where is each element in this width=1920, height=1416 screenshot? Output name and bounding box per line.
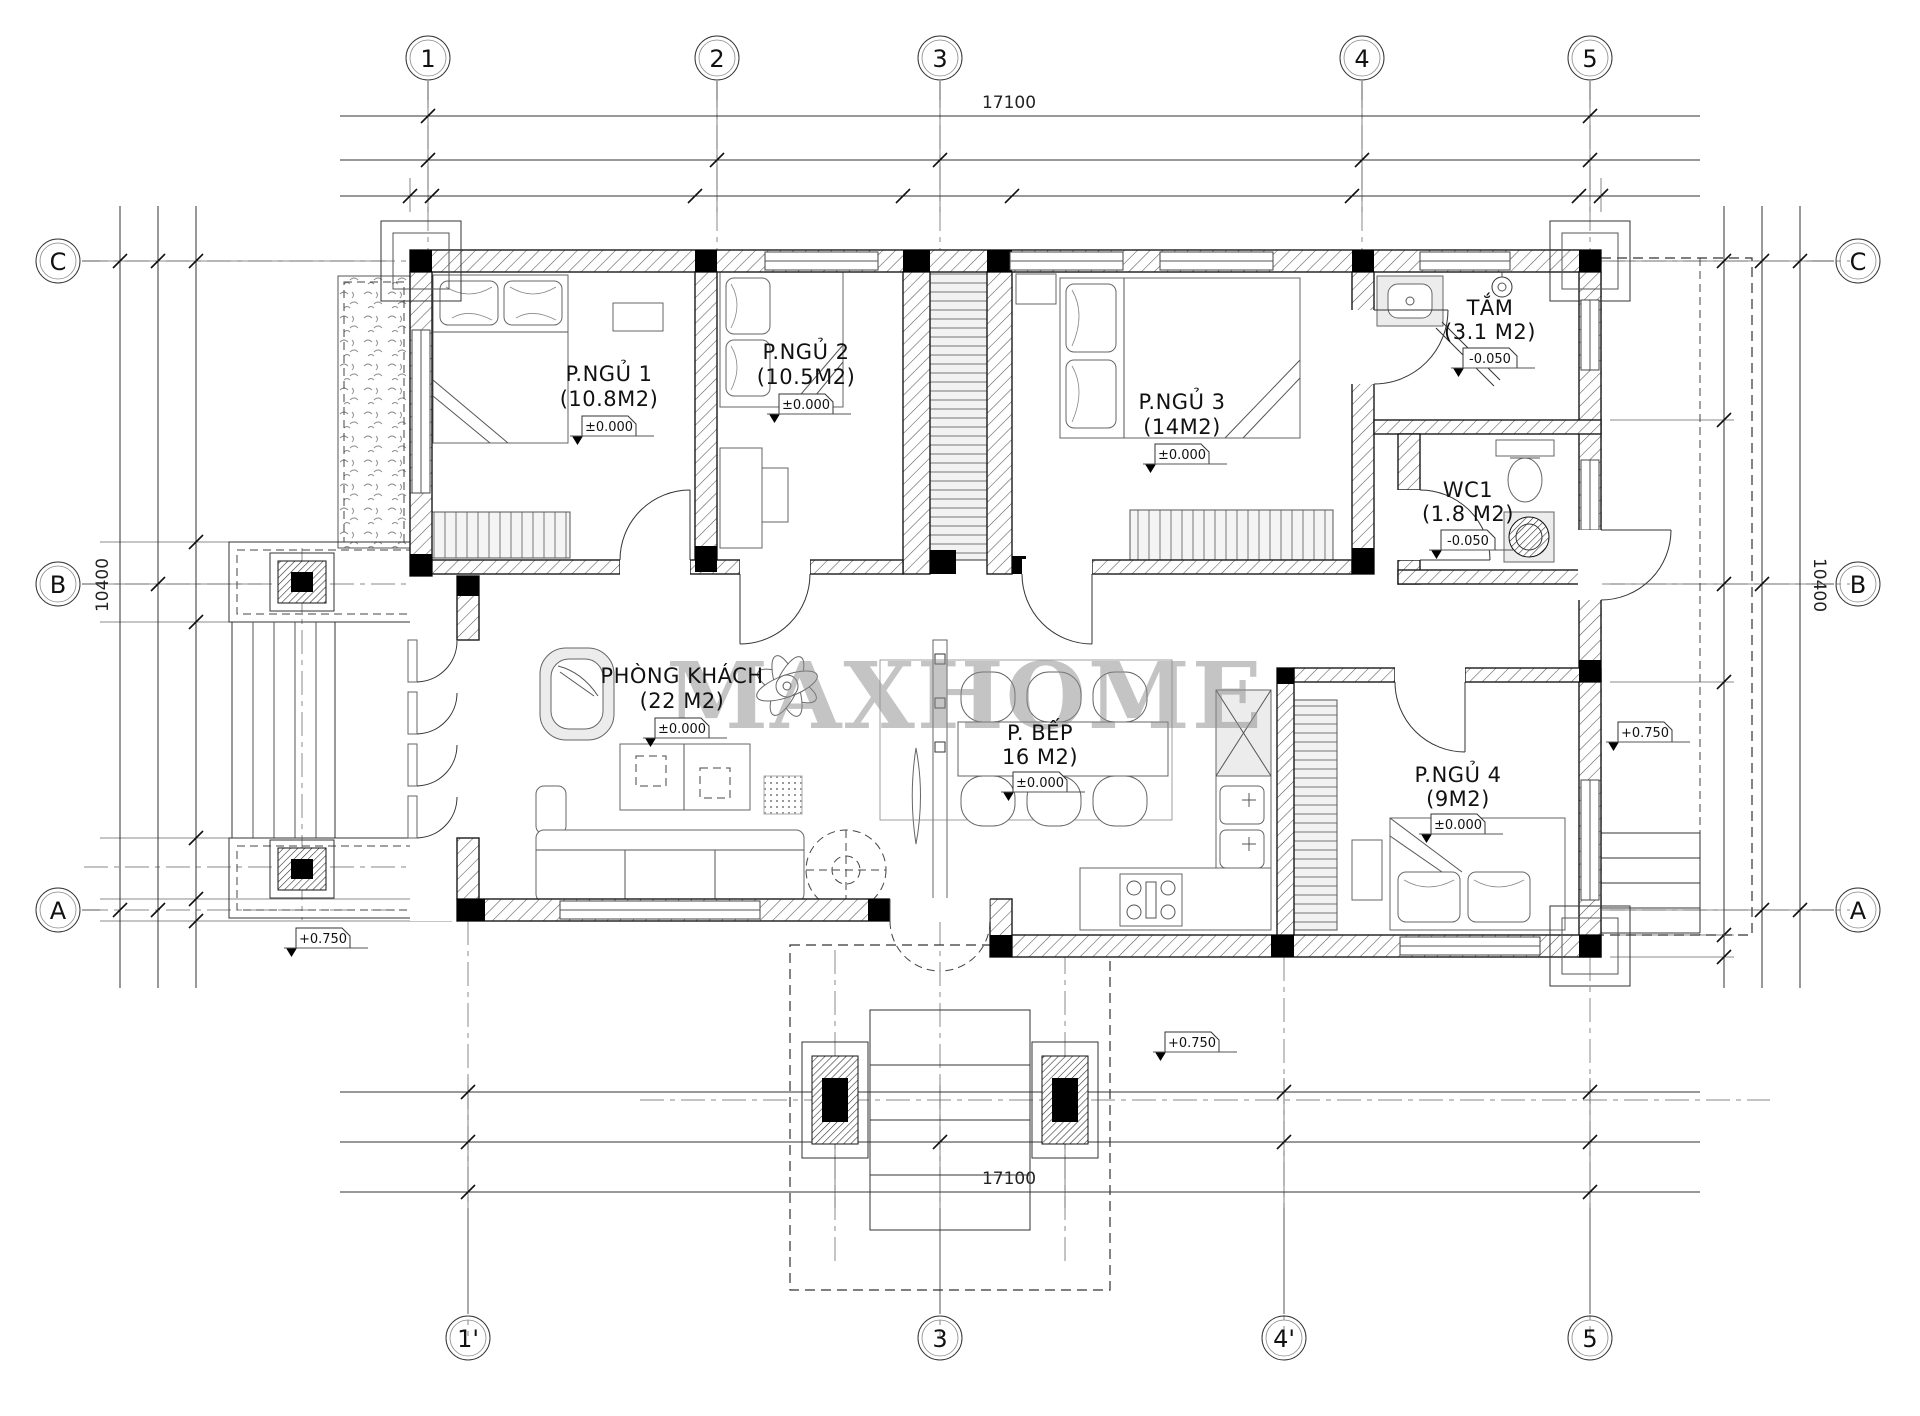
grid-bubble-bottom-4p: 4' bbox=[1262, 1208, 1306, 1360]
grid-bubble-top-4: 4 bbox=[1340, 36, 1384, 100]
svg-text:(3.1 M2): (3.1 M2) bbox=[1444, 320, 1536, 344]
svg-text:PHÒNG KHÁCH: PHÒNG KHÁCH bbox=[600, 663, 763, 688]
porch-deck bbox=[232, 622, 335, 838]
svg-text:3: 3 bbox=[932, 1325, 947, 1353]
flag-right-terrace: +0.750 bbox=[1606, 722, 1690, 751]
svg-text:±0.000: ±0.000 bbox=[1158, 448, 1206, 463]
dim-top-total: 17100 bbox=[982, 93, 1036, 113]
svg-text:-0.050: -0.050 bbox=[1447, 534, 1489, 549]
dim-bottom-total: 17100 bbox=[982, 1169, 1036, 1189]
svg-text:1: 1 bbox=[420, 45, 435, 73]
entrance-steps bbox=[870, 1010, 1030, 1230]
window-bedroom4-bottom bbox=[1400, 937, 1540, 955]
flag-left-porch: +0.750 bbox=[284, 928, 368, 957]
svg-text:C: C bbox=[50, 248, 67, 276]
svg-text:P.NGỦ 2: P.NGỦ 2 bbox=[763, 337, 850, 364]
porch-column-footing-bottom bbox=[270, 840, 334, 898]
svg-text:5: 5 bbox=[1582, 1325, 1597, 1353]
svg-text:B: B bbox=[50, 571, 66, 599]
dim-right-total: 10400 bbox=[1809, 558, 1829, 612]
svg-text:P. BẾP: P. BẾP bbox=[1007, 718, 1073, 745]
svg-text:4': 4' bbox=[1273, 1325, 1295, 1353]
grid-bubble-left-A: A bbox=[36, 888, 100, 932]
svg-text:+0.750: +0.750 bbox=[1621, 726, 1669, 741]
svg-text:(10.5M2): (10.5M2) bbox=[757, 365, 856, 389]
svg-text:C: C bbox=[1850, 248, 1867, 276]
front-entrance-porch bbox=[790, 945, 1110, 1290]
svg-text:1': 1' bbox=[457, 1325, 479, 1353]
entrance-column-footing-left bbox=[802, 1042, 868, 1158]
svg-text:±0.000: ±0.000 bbox=[658, 722, 706, 737]
grid-bubble-top-3: 3 bbox=[918, 36, 962, 100]
grid-bubble-left-C: C bbox=[36, 239, 100, 283]
svg-text:±0.000: ±0.000 bbox=[585, 420, 633, 435]
window-bedroom1-left bbox=[412, 330, 430, 493]
svg-text:±0.000: ±0.000 bbox=[1434, 818, 1482, 833]
window-bathroom-right bbox=[1581, 300, 1599, 370]
flag-front-entrance: +0.750 bbox=[1153, 1032, 1237, 1061]
floor-plan-sheet: 17100 17100 10400 10400 1 2 3 4 5 1' 3 4… bbox=[0, 0, 1920, 1416]
grid-bubble-left-B: B bbox=[36, 562, 100, 606]
planter-bed bbox=[338, 276, 410, 548]
svg-text:3: 3 bbox=[932, 45, 947, 73]
svg-text:4: 4 bbox=[1354, 45, 1369, 73]
window-bedroom2 bbox=[765, 252, 878, 270]
svg-text:-0.050: -0.050 bbox=[1469, 352, 1511, 367]
window-bedroom4-right bbox=[1581, 780, 1599, 900]
porch-column-footing-top bbox=[270, 553, 334, 611]
svg-text:(1.8 M2): (1.8 M2) bbox=[1422, 502, 1514, 526]
svg-text:(9M2): (9M2) bbox=[1426, 787, 1490, 811]
svg-text:TẮM: TẮM bbox=[1466, 292, 1514, 320]
svg-text:2: 2 bbox=[709, 45, 724, 73]
svg-text:P.NGỦ 3: P.NGỦ 3 bbox=[1139, 387, 1226, 414]
entrance-column-footing-right bbox=[1032, 1042, 1098, 1158]
grid-bubble-bottom-3: 3 bbox=[918, 1208, 962, 1360]
svg-text:B: B bbox=[1850, 571, 1866, 599]
dim-left-total: 10400 bbox=[93, 558, 113, 612]
svg-text:+0.750: +0.750 bbox=[1168, 1036, 1216, 1051]
window-living-bottom bbox=[560, 901, 760, 919]
stove bbox=[1120, 874, 1182, 926]
svg-text:WC1: WC1 bbox=[1443, 478, 1493, 502]
grid-bubble-bottom-1p: 1' bbox=[446, 1208, 490, 1360]
svg-text:P.NGỦ 1: P.NGỦ 1 bbox=[566, 359, 653, 386]
grid-bubble-top-2: 2 bbox=[695, 36, 739, 100]
svg-text:5: 5 bbox=[1582, 45, 1597, 73]
window-wc1-right bbox=[1581, 460, 1599, 530]
svg-text:P.NGỦ 4: P.NGỦ 4 bbox=[1415, 760, 1502, 787]
svg-text:16 M2): 16 M2) bbox=[1002, 745, 1078, 769]
svg-text:(22 M2): (22 M2) bbox=[640, 689, 725, 713]
floor-plan-drawing: 17100 17100 10400 10400 1 2 3 4 5 1' 3 4… bbox=[0, 0, 1920, 1416]
svg-text:±0.000: ±0.000 bbox=[782, 398, 830, 413]
svg-text:(14M2): (14M2) bbox=[1143, 415, 1221, 439]
skylight-shaft bbox=[930, 272, 987, 560]
grid-bubble-top-1: 1 bbox=[406, 36, 450, 100]
grid-bubble-right-A: A bbox=[1812, 888, 1880, 932]
grid-bubble-bottom-5: 5 bbox=[1568, 1208, 1612, 1360]
svg-text:(10.8M2): (10.8M2) bbox=[560, 387, 659, 411]
window-bedroom3-b bbox=[1160, 252, 1273, 270]
svg-text:+0.750: +0.750 bbox=[299, 932, 347, 947]
window-bathroom-top bbox=[1420, 252, 1510, 270]
grid-bubble-top-5: 5 bbox=[1568, 36, 1612, 100]
svg-text:±0.000: ±0.000 bbox=[1016, 776, 1064, 791]
svg-text:A: A bbox=[1850, 897, 1867, 925]
window-bedroom3-a bbox=[1010, 252, 1123, 270]
door-side-terrace bbox=[1578, 530, 1671, 600]
grid-bubble-right-C: C bbox=[1812, 239, 1880, 283]
svg-text:A: A bbox=[50, 897, 67, 925]
watermark: MAXHOME bbox=[666, 642, 1264, 750]
